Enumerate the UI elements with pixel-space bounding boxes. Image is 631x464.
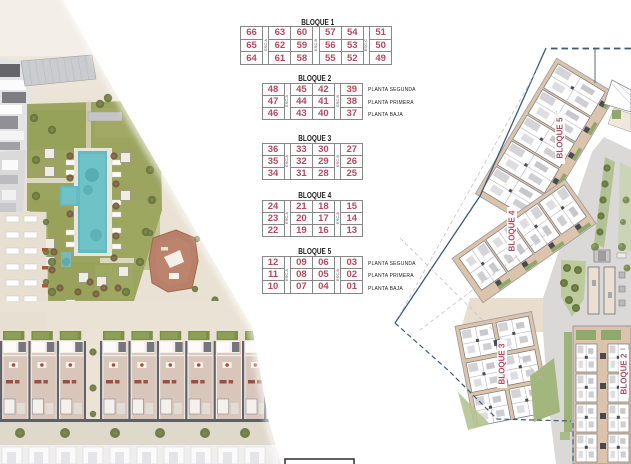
svg-text:BLOQUE 5: BLOQUE 5 — [556, 117, 565, 158]
svg-text:BLOQUE 3: BLOQUE 3 — [498, 343, 507, 384]
svg-text:BLOQUE 4: BLOQUE 4 — [508, 210, 517, 251]
svg-text:BLOQUE 2: BLOQUE 2 — [620, 353, 629, 394]
